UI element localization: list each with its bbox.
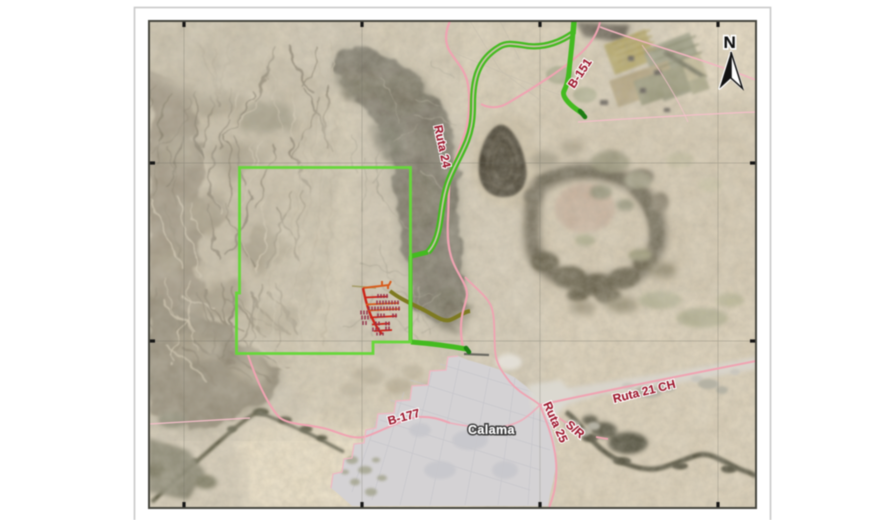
svg-text:N: N [724,33,736,52]
svg-text:Calama: Calama [468,423,516,437]
